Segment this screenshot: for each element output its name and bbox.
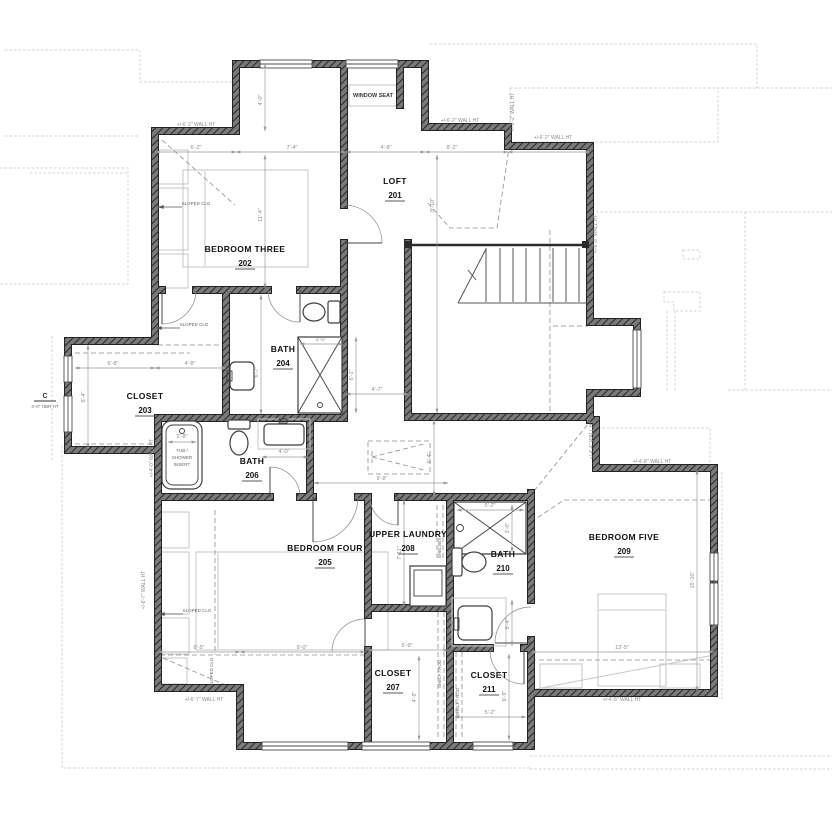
room-number-203: 203 [138,406,152,415]
feature-label: WINDOW SEAT [353,93,394,99]
wall-height-label: +/-4'-0" WALL HT [149,439,155,478]
wall-height-label: +/-6'-2" WALL HT [177,122,216,128]
room-label-211: CLOSET [471,670,508,680]
window [260,60,312,68]
dimension-label: 5'-2" [485,503,496,509]
room-label-207: CLOSET [375,668,412,678]
room-number-209: 209 [617,547,631,556]
stairs [404,241,589,303]
dimension-label: 4'-9" [412,691,418,702]
wall-height-label: +/-4'-8" WALL HT [633,459,672,465]
room-number-205: 205 [318,558,332,567]
dimension-label: 9'-0" [297,645,308,651]
feature-label: 4'-0" HDR HT [31,404,58,409]
dimension-label: 3'-0" [505,522,511,533]
window [64,356,72,382]
feature-label: INSERT [174,462,191,467]
dimension-label: 4'-0" [279,449,290,455]
room-number-207: 207 [386,683,400,692]
labels: LOFT201BEDROOM THREE202CLOSET203BATH204B… [31,93,696,716]
dimension-label: 4'-0" [258,94,264,105]
sink [258,419,310,449]
door [268,290,300,322]
bed-bedroom-four [196,552,388,650]
dimension-label: 5'-4" [505,618,511,629]
feature-label: SLOPED CLG [183,608,212,613]
dimension-label: 2'-8" [177,434,188,440]
dimension-lines [75,64,714,740]
door [370,497,398,525]
window [710,553,718,581]
wall-height-label: +/-6'-7" WALL HT [185,697,224,703]
feature-label: TUB / [176,448,188,453]
sink [227,362,254,390]
dimension-label: 9'-8" [377,476,388,482]
window [262,742,348,750]
wall-height-label: +/-6'-2" WALL HT [534,135,573,141]
room-number-201: 201 [388,191,402,200]
room-label-206: BATH [240,456,265,466]
room-number-204: 204 [276,359,290,368]
wall-height-label: +/-6'-2" WALL HT [510,93,516,132]
window [64,396,72,432]
shower [298,337,342,413]
dimension-label: 6'-2" [544,145,555,151]
feature-label: SLOPED CLG [209,657,214,686]
room-label-201: LOFT [383,176,407,186]
sink [452,598,506,646]
door [495,607,531,643]
dimension-label: 5'-2" [485,710,496,716]
room-label-204: BATH [271,344,296,354]
window [362,742,430,750]
room-number-202: 202 [238,259,252,268]
feature-label: SLOPED CLG [180,322,209,327]
dimension-label: 7'-11" [397,546,403,560]
room-label-208: UPPER LAUNDRY [369,529,447,539]
feature-label: SLOPED CLG [182,201,211,206]
dimension-label: 6'-7" [254,366,260,377]
room-label-202: BEDROOM THREE [205,244,286,254]
dimension-label: 4'-8" [185,361,196,367]
room-number-208: 208 [401,544,415,553]
room-number-211: 211 [483,685,496,694]
floor-plan-canvas: LOFT201BEDROOM THREE202CLOSET203BATH204B… [0,0,832,828]
feature-label: SHELF / ROD [455,687,460,716]
dimension-label: 11'-4" [258,208,264,222]
door [162,290,196,324]
dimension-label: 4'-7" [372,387,383,393]
washer-dryer [410,566,446,606]
wall-height-label: +/-6'-7" WALL HT [141,571,147,610]
window [710,583,718,625]
toilet [303,301,340,323]
feature-label: SHELF / ROD [437,659,442,688]
door [270,467,300,497]
room-label-205: BEDROOM FOUR [287,543,363,553]
wall-segments [68,64,714,746]
dimension-label: 6'-2" [191,145,202,151]
dimension-label: 6'-9" [502,690,508,701]
dimension-label: 8'-10" [430,198,436,212]
door [344,205,382,243]
room-number-210: 210 [496,564,510,573]
dimension-label: 8'-5" [194,645,205,651]
window [346,60,398,68]
wall-height-label: +/-6'-8" WALL HT [593,215,599,254]
room-number-206: 206 [245,471,259,480]
feature-label: C [42,393,47,400]
dimension-label: 3'-0" [316,337,327,343]
wall-height-label: +/-6'-2" WALL HT [441,118,480,124]
dimension-label: 6'-4" [81,391,87,402]
dimension-label: 13'-5" [615,645,629,651]
wall-height-label: +/-4'-4" WALL HT [589,421,595,460]
dimension-label: 8'-2" [447,145,458,151]
toilet [228,420,250,455]
dimension-label: 4'-8" [381,145,392,151]
floor-plan-drawing: LOFT201BEDROOM THREE202CLOSET203BATH204B… [0,0,832,828]
door [313,497,358,542]
room-label-203: CLOSET [127,391,164,401]
dimension-label: 15'-10" [690,571,696,588]
dimension-label: 6'-1" [349,369,355,380]
dimension-label: 7'-4" [287,145,298,151]
dimension-label: 5'-9" [402,643,413,649]
window [633,330,641,388]
feature-label: SHELVES [437,538,442,558]
feature-label: SHOWER [172,455,193,460]
room-label-209: BEDROOM FIVE [589,532,659,542]
room-label-210: BATH [491,549,516,559]
wall-height-label: +/-4'-8" WALL HT [603,697,642,703]
bed-bedroom-five [598,594,666,686]
dimension-label: 5'-4" [427,452,433,463]
door [332,619,365,652]
window [473,742,513,750]
dimension-label: 6'-8" [108,361,119,367]
